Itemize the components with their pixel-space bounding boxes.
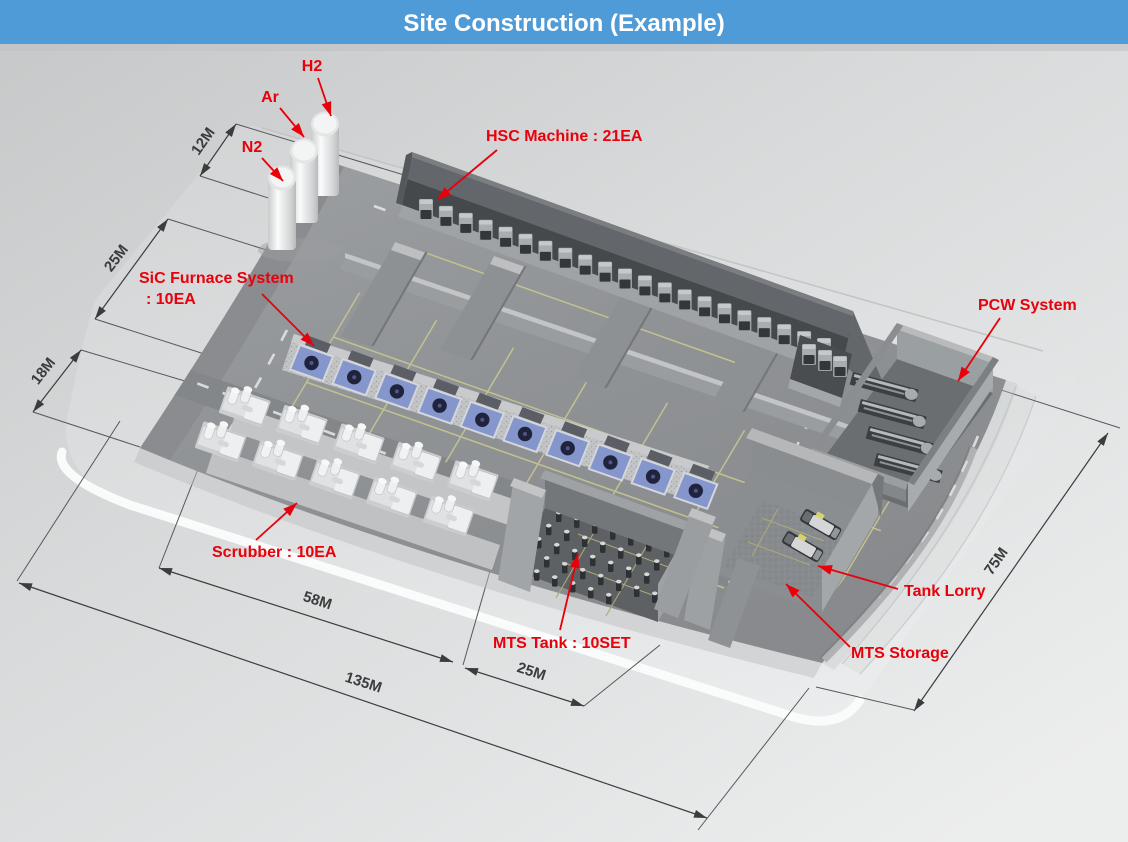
svg-text:Scrubber : 10EA: Scrubber : 10EA (212, 544, 337, 561)
svg-text:MTS Storage: MTS Storage (851, 645, 949, 662)
svg-text:N2: N2 (242, 139, 263, 156)
svg-text:: 10EA: : 10EA (146, 291, 196, 308)
svg-text:Site Construction (Example): Site Construction (Example) (403, 10, 724, 37)
svg-text:Tank Lorry: Tank Lorry (904, 583, 986, 600)
svg-text:PCW System: PCW System (978, 297, 1077, 314)
svg-text:H2: H2 (302, 58, 323, 75)
svg-text:Ar: Ar (261, 89, 279, 106)
svg-text:SiC Furnace System: SiC Furnace System (139, 270, 294, 287)
svg-text:MTS Tank : 10SET: MTS Tank : 10SET (493, 635, 631, 652)
svg-text:HSC Machine : 21EA: HSC Machine : 21EA (486, 128, 643, 145)
